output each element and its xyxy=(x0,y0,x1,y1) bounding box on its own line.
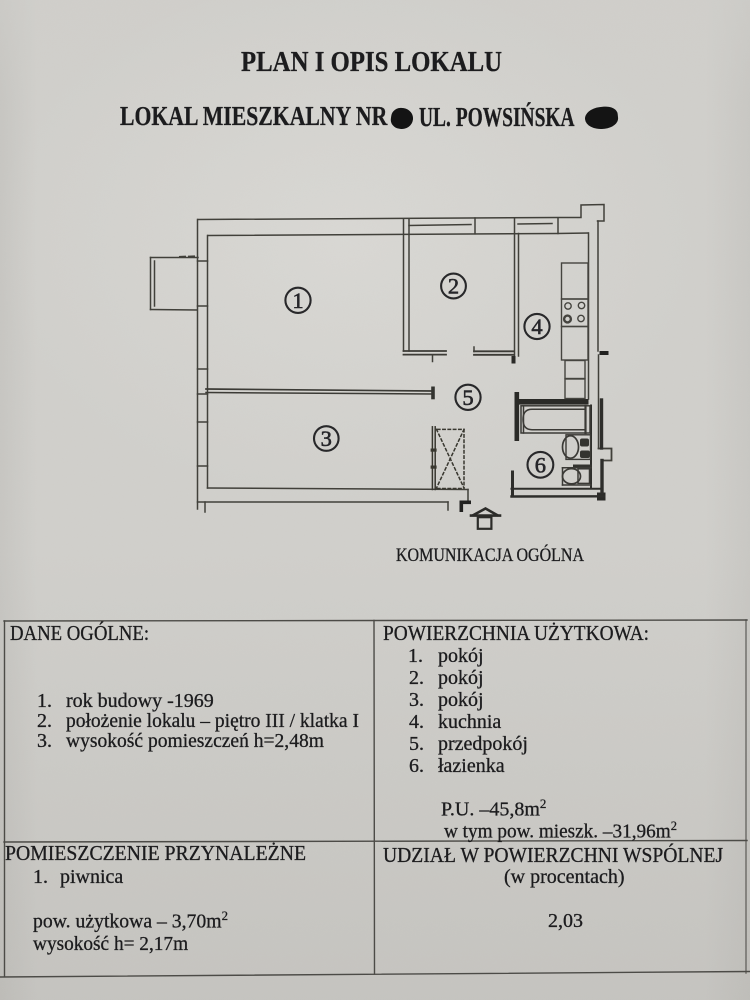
svg-text:6: 6 xyxy=(535,453,546,478)
svg-text:3: 3 xyxy=(321,426,332,451)
svg-text:4: 4 xyxy=(531,314,542,339)
svg-text:2: 2 xyxy=(448,274,459,299)
svg-text:5: 5 xyxy=(462,385,473,410)
svg-text:1: 1 xyxy=(292,288,303,313)
